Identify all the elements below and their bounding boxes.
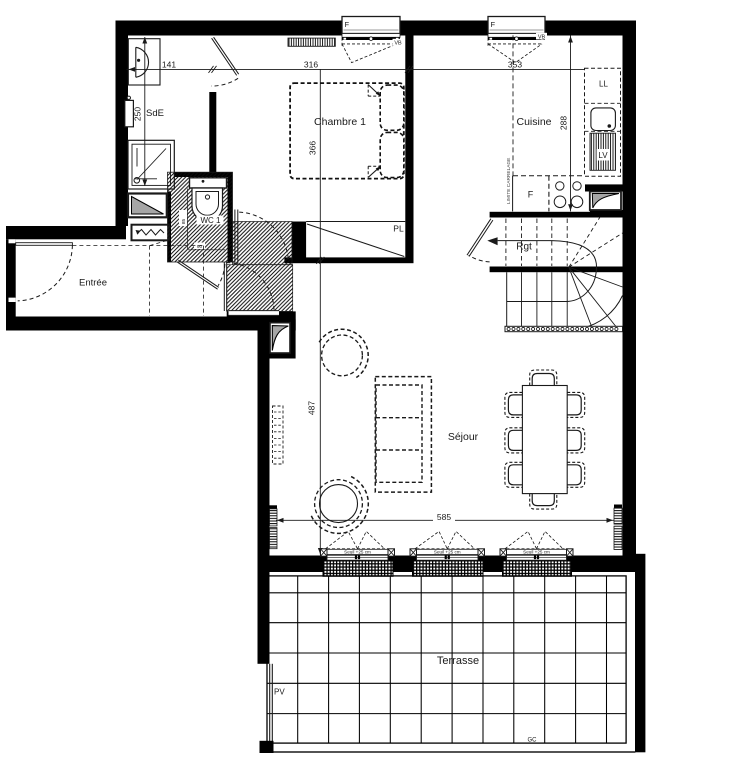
svg-text:85: 85 [181,219,187,225]
svg-text:Cuisine: Cuisine [516,116,551,128]
svg-text:VB: VB [538,34,546,40]
svg-text:WC 1: WC 1 [201,216,222,225]
svg-text:90: 90 [197,244,203,250]
svg-text:Entrée: Entrée [79,278,107,289]
svg-text:353: 353 [508,60,522,70]
svg-text:585: 585 [437,512,451,522]
svg-text:316: 316 [304,60,318,70]
svg-text:Seuil +25 cm: Seuil +25 cm [434,550,461,555]
svg-text:LIMITE CARRELAGE: LIMITE CARRELAGE [506,158,512,204]
svg-text:Seuil +25 cm: Seuil +25 cm [523,550,550,555]
svg-text:Terrasse: Terrasse [437,655,479,667]
svg-text:Chambre 1: Chambre 1 [314,116,366,128]
svg-text:VB: VB [394,41,402,47]
svg-text:F: F [528,190,534,200]
svg-text:F: F [345,20,350,29]
svg-text:GC: GC [528,738,538,744]
svg-text:487: 487 [307,401,317,415]
svg-text:LV: LV [598,151,608,160]
svg-text:288: 288 [559,116,569,130]
svg-text:PL: PL [393,224,404,234]
svg-text:LL: LL [599,80,608,89]
svg-text:Séjour: Séjour [448,431,479,443]
svg-text:SdE: SdE [146,108,164,119]
svg-text:PV: PV [274,688,285,697]
svg-text:F: F [491,20,496,29]
svg-text:141: 141 [162,60,176,70]
svg-text:Rgt: Rgt [516,242,532,253]
svg-text:Seuil +25 cm: Seuil +25 cm [344,550,371,555]
svg-text:366: 366 [308,141,318,155]
